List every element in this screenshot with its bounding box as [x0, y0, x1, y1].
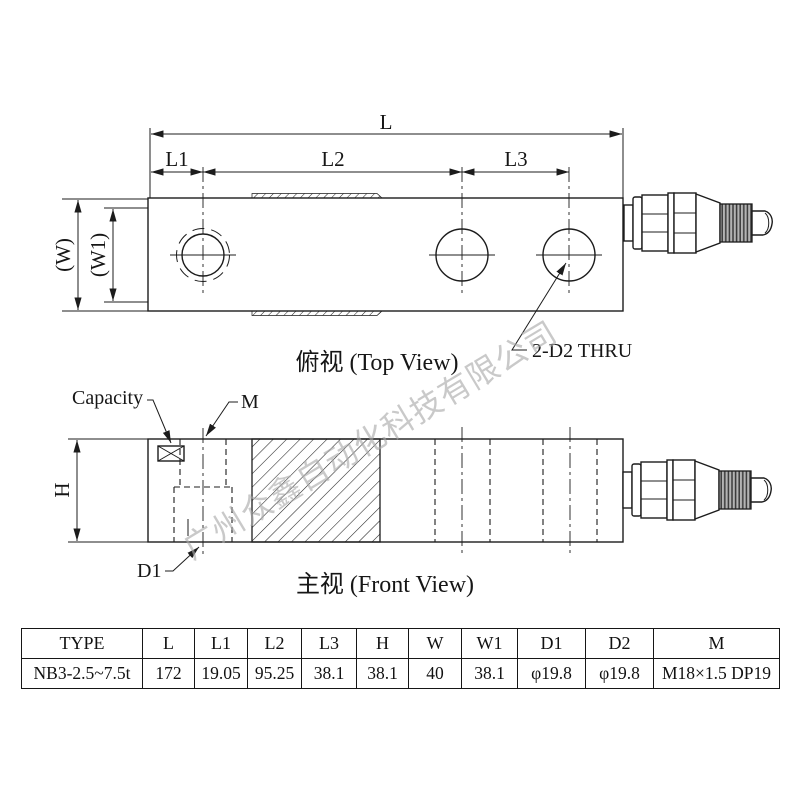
table-cell: 38.1 [302, 659, 357, 689]
table-header-cell: W1 [462, 629, 518, 659]
table-cell: M18×1.5 DP19 [654, 659, 780, 689]
table-header-cell: L1 [195, 629, 248, 659]
table-header-cell: D1 [518, 629, 586, 659]
table-header-cell: M [654, 629, 780, 659]
table-header-cell: D2 [586, 629, 654, 659]
table-cell: NB3-2.5~7.5t [22, 659, 143, 689]
dim-label-h: H [50, 482, 74, 497]
table-header-cell: TYPE [22, 629, 143, 659]
table-cell: φ19.8 [586, 659, 654, 689]
cable-gland-front [623, 460, 771, 520]
table-cell: φ19.8 [518, 659, 586, 689]
table-cell: 95.25 [248, 659, 302, 689]
table-header-cell: L [143, 629, 195, 659]
cable-gland-top [624, 193, 772, 253]
dim-label-l: L [380, 110, 393, 134]
dim-label-l2: L2 [321, 147, 344, 171]
table-header-cell: W [409, 629, 462, 659]
front-view-title: 主视 (Front View) [296, 571, 474, 598]
table-header-row: TYPE L L1 L2 L3 H W W1 D1 D2 M [22, 629, 780, 659]
table-row: NB3-2.5~7.5t 172 19.05 95.25 38.1 38.1 4… [22, 659, 780, 689]
table-cell: 40 [409, 659, 462, 689]
top-view: L L1 L2 L3 (W) (W1) 2-D2 THRU 俯视 (Top Vi… [51, 110, 772, 376]
table-cell: 19.05 [195, 659, 248, 689]
table-header-cell: L2 [248, 629, 302, 659]
table-header-cell: L3 [302, 629, 357, 659]
dim-label-w: (W) [51, 238, 75, 272]
thread-label-m: M [241, 391, 259, 413]
table-cell: 38.1 [357, 659, 409, 689]
dim-label-l3: L3 [504, 147, 527, 171]
table-cell: 172 [143, 659, 195, 689]
hole-label-d1: D1 [137, 560, 161, 582]
capacity-label: Capacity [72, 387, 143, 409]
table-cell: 38.1 [462, 659, 518, 689]
table-header-cell: H [357, 629, 409, 659]
spec-table: TYPE L L1 L2 L3 H W W1 D1 D2 M NB3-2.5~7… [21, 628, 780, 689]
top-view-title: 俯视 (Top View) [295, 349, 458, 376]
dim-label-l1: L1 [165, 147, 188, 171]
dim-label-w1: (W1) [86, 233, 110, 277]
